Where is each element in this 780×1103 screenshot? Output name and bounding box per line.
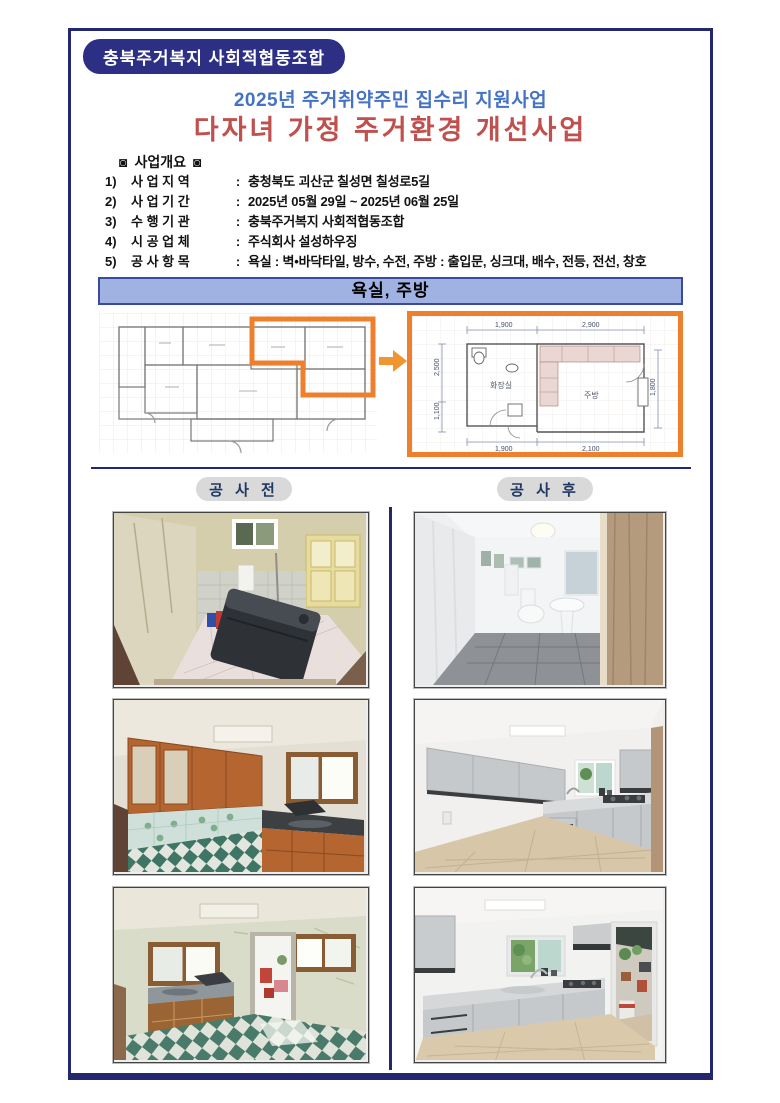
item-value: 욕실 : 벽•바닥타일, 방수, 수전, 주방 : 출입문, 싱크대, 배수, … (248, 252, 680, 272)
floor-plan-detail-drawing: 1,900 2,900 1,900 2,100 2,500 1,100 1,80… (412, 316, 678, 452)
overview-item-region: 1) 사 업 지 역 : 충청북도 괴산군 칠성면 칠성로5길 (105, 172, 680, 192)
item-value: 충청북도 괴산군 칠성면 칠성로5길 (248, 172, 680, 192)
photo-before-bathroom (113, 512, 369, 688)
dimension-label: 1,900 (495, 446, 513, 452)
dimension-label: 2,500 (434, 358, 441, 376)
dimension-label: 1,900 (495, 322, 513, 329)
page-frame: 충북주거복지 사회적협동조합 2025년 주거취약주민 집수리 지원사업 다자녀… (68, 28, 713, 1080)
item-value: 충북주거복지 사회적협동조합 (248, 212, 680, 232)
overview-item-contractor: 4) 시 공 업 체 : 주식회사 설성하우징 (105, 232, 680, 252)
item-number: 3) (105, 212, 131, 232)
square-bullet-icon: ◙ (119, 154, 127, 170)
item-label: 공 사 항 목 (131, 252, 228, 272)
floor-plan-detail: 1,900 2,900 1,900 2,100 2,500 1,100 1,80… (407, 311, 683, 457)
section-banner: 욕실, 주방 (98, 277, 683, 305)
item-separator: : (228, 192, 248, 212)
item-separator: : (228, 212, 248, 232)
overview-item-agency: 3) 수 행 기 관 : 충북주거복지 사회적협동조합 (105, 212, 680, 232)
dimension-label: 2,900 (582, 322, 600, 329)
item-label: 수 행 기 관 (131, 212, 228, 232)
room-label-bathroom: 화장실 (490, 380, 512, 390)
item-label: 사 업 지 역 (131, 172, 228, 192)
section-divider-rule (91, 467, 691, 469)
column-divider (389, 507, 392, 1070)
item-separator: : (228, 232, 248, 252)
org-badge: 충북주거복지 사회적협동조합 (83, 39, 345, 74)
item-value: 주식회사 설성하우징 (248, 232, 680, 252)
item-separator: : (228, 172, 248, 192)
overview-heading-text: 사업개요 (134, 152, 186, 172)
square-bullet-icon: ◙ (193, 154, 201, 170)
item-value: 2025년 05월 29일 ~ 2025년 06월 25일 (248, 192, 680, 212)
overview-item-period: 2) 사 업 기 간 : 2025년 05월 29일 ~ 2025년 06월 2… (105, 192, 680, 212)
after-label-pill: 공 사 후 (497, 477, 593, 501)
before-label-pill: 공 사 전 (196, 477, 292, 501)
item-label: 시 공 업 체 (131, 232, 228, 252)
item-number: 2) (105, 192, 131, 212)
page-title: 다자녀 가정 주거환경 개선사업 (71, 108, 710, 147)
dimension-label: 1,800 (650, 378, 657, 396)
dimension-label: 2,100 (582, 446, 600, 452)
overview-list: 1) 사 업 지 역 : 충청북도 괴산군 칠성면 칠성로5길 2) 사 업 기… (105, 172, 680, 272)
overview-heading: ◙ 사업개요 ◙ (119, 152, 201, 172)
photo-after-bathroom (414, 512, 666, 688)
photo-after-kitchen-entrance (414, 887, 666, 1063)
item-number: 5) (105, 252, 131, 272)
item-number: 1) (105, 172, 131, 192)
item-number: 4) (105, 232, 131, 252)
floor-plan-overview-drawing (99, 313, 377, 453)
photo-before-kitchen-entrance (113, 887, 369, 1063)
photo-before-kitchen (113, 699, 369, 875)
room-label-kitchen: 주방 (584, 390, 599, 400)
overview-item-workscope: 5) 공 사 항 목 : 욕실 : 벽•바닥타일, 방수, 수전, 주방 : 출… (105, 252, 680, 272)
item-separator: : (228, 252, 248, 272)
photo-after-kitchen (414, 699, 666, 875)
floor-plan-overview (99, 313, 377, 453)
item-label: 사 업 기 간 (131, 192, 228, 212)
dimension-label: 1,100 (434, 402, 441, 420)
arrow-right-icon (377, 347, 409, 375)
